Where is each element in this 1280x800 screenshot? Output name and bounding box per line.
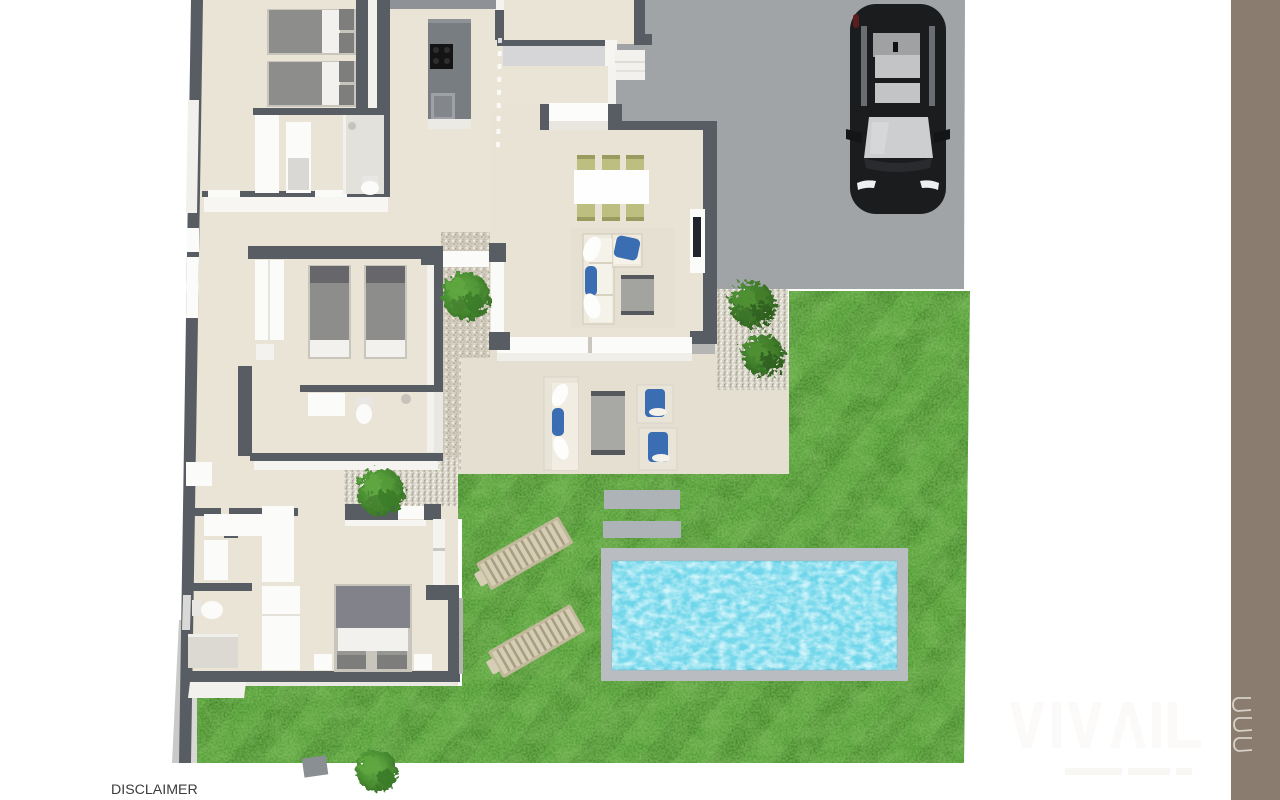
svg-text:DISCLAIMER: DISCLAIMER [111,782,198,798]
